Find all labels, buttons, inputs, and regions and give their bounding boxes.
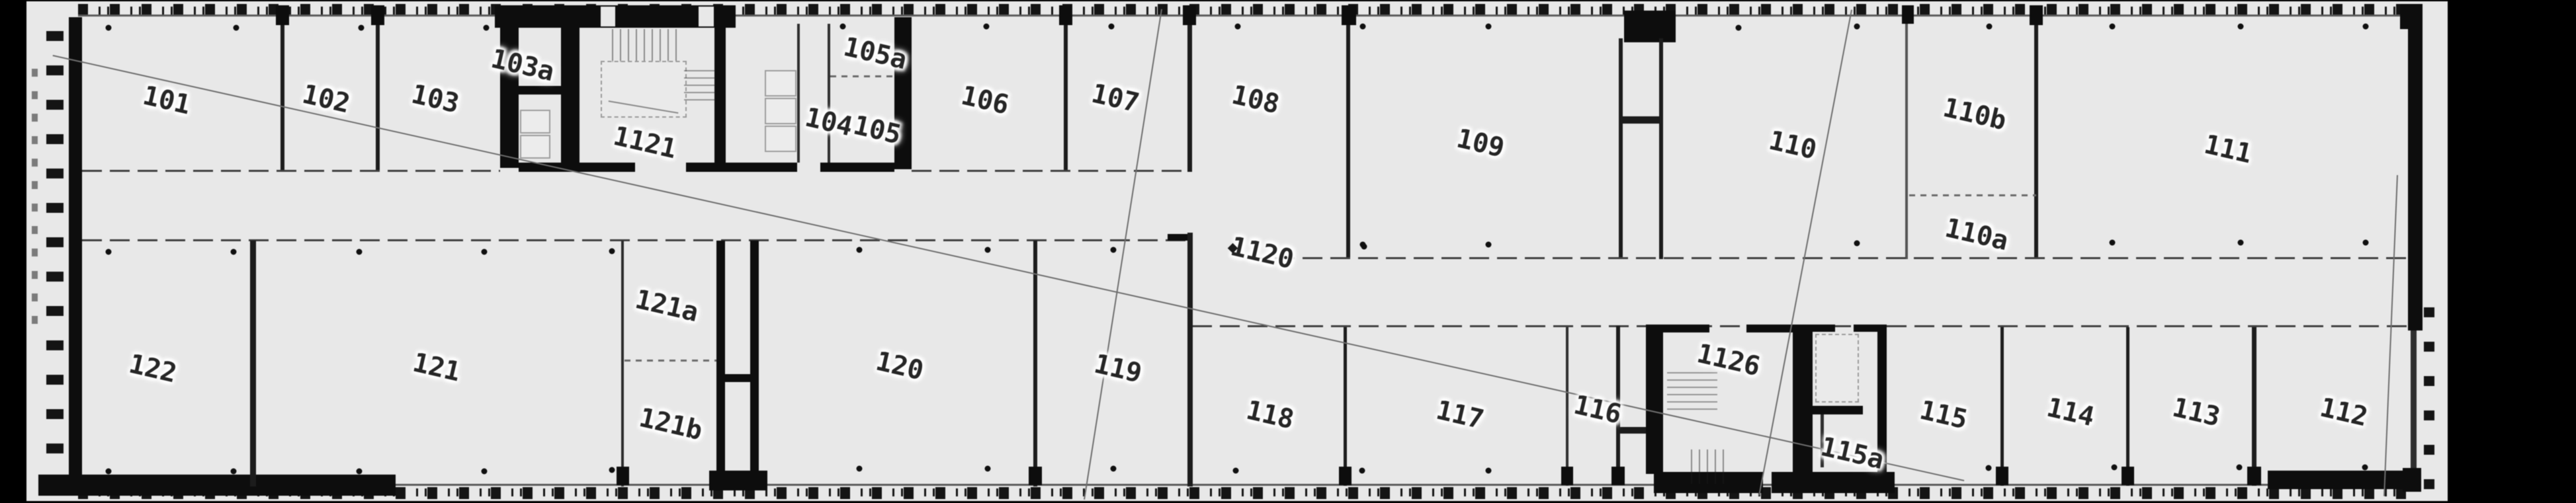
- column-dot: [484, 25, 490, 31]
- column-dot: [482, 469, 488, 475]
- column-dot: [1361, 244, 1367, 250]
- column-dot: [2363, 240, 2369, 246]
- column-dot: [1486, 242, 1492, 248]
- column-dot: [234, 25, 239, 31]
- column-dot: [231, 469, 237, 475]
- column-dot: [2238, 24, 2244, 30]
- column-dot: [1359, 468, 1365, 474]
- column-dot: [2362, 465, 2368, 471]
- column-dot: [1486, 468, 1492, 474]
- floor-plan-sheet: 101 102 103 103a 1121 105a 104 105 106 1…: [0, 0, 2576, 503]
- column-dot: [357, 249, 363, 255]
- column-dot: [1111, 466, 1117, 472]
- column-dot: [857, 466, 863, 472]
- column-dot: [1986, 465, 1992, 471]
- column-dot: [609, 249, 615, 254]
- column-dot: [1233, 468, 1239, 474]
- column-dot: [2363, 24, 2369, 30]
- column-dot: [359, 25, 365, 31]
- column-dot: [231, 249, 237, 255]
- column-dot: [1111, 247, 1117, 253]
- column-dot: [1486, 24, 1492, 30]
- column-dot: [357, 469, 363, 475]
- column-dot: [984, 24, 990, 30]
- column-dot: [985, 247, 991, 253]
- column-dot: [106, 25, 112, 31]
- column-dot: [1360, 24, 1366, 30]
- column-dot: [106, 469, 112, 475]
- column-dot: [106, 249, 112, 255]
- column-dot: [482, 249, 488, 255]
- column-dot: [840, 24, 846, 30]
- column-dot: [857, 247, 863, 253]
- column-dot: [1235, 24, 1241, 30]
- column-dot: [1854, 241, 1860, 247]
- column-dot: [2110, 24, 2116, 30]
- building-plan: 101 102 103 103a 1121 105a 104 105 106 1…: [26, 1, 2448, 501]
- column-dot: [1987, 24, 1993, 30]
- column-dot: [1736, 25, 1742, 31]
- column-dot: [1109, 24, 1115, 30]
- column-dot: [2110, 240, 2116, 246]
- column-dot: [609, 467, 615, 473]
- column-dot: [2238, 240, 2244, 246]
- column-dot: [985, 466, 991, 472]
- column-dot: [2237, 465, 2243, 471]
- column-dot: [1854, 24, 1860, 30]
- column-dot: [2112, 465, 2118, 471]
